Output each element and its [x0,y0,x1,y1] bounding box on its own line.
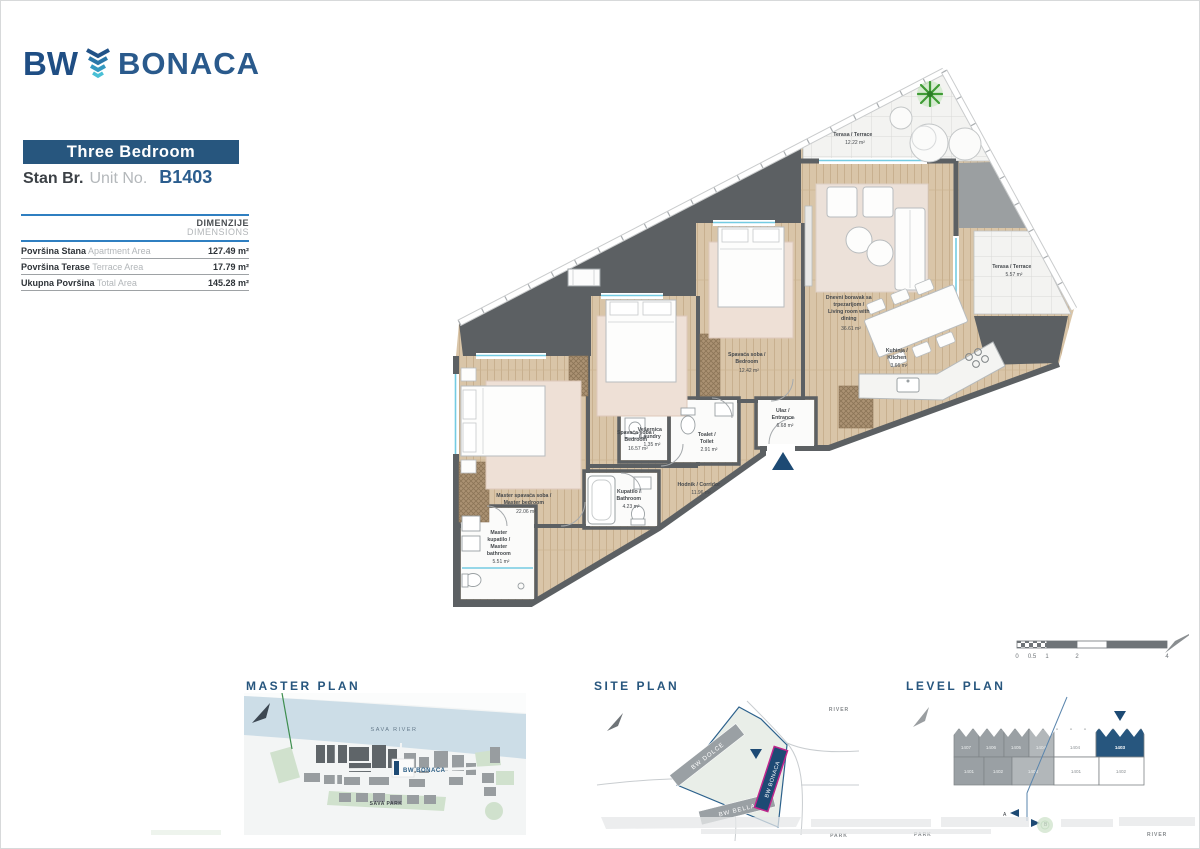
unit-label-en: Unit No. [89,170,147,188]
svg-text:1406: 1406 [986,745,997,750]
row-label-en: Apartment Area [88,246,151,256]
row-label-en: Terrace Area [92,262,143,272]
table-row: Površina Stana Apartment Area 127.49 m² [21,243,249,259]
master-plan-map: SAVA RIVER [244,693,526,835]
river-label: SAVA RIVER [371,727,418,733]
table-row: Ukupna Površina Total Area 145.28 m² [21,275,249,291]
park-label: SAVA PARK [370,801,403,807]
north-arrow-icon [1165,631,1189,653]
svg-text:1404: 1404 [1070,745,1081,750]
svg-text:1401: 1401 [964,769,975,774]
table-header: DIMENZIJE DIMENSIONS [21,219,249,240]
ac-unit [568,269,600,286]
table-row: Površina Terase Terrace Area 17.79 m² [21,259,249,275]
scale-tick: 0.5 [1028,654,1037,660]
scale-bar: 0 0.5 1 2 4 [1009,623,1189,665]
scale-tick: 1 [1045,654,1049,660]
entrance-marker-icon [772,452,794,470]
dimensions-table: DIMENZIJE DIMENSIONS Površina Stana Apar… [21,214,249,291]
svg-text:1402: 1402 [1116,769,1127,774]
brochure-page: BW BONACA Three Bedroom Stan Br. Unit No… [0,0,1200,849]
bedroom1-furniture [709,227,793,338]
site-plan-title: SITE PLAN [594,679,679,693]
row-label-en: Total Area [97,278,137,288]
row-label-sr: Površina Terase [21,262,90,272]
bedroom2-furniture [597,300,687,416]
row-value: 17.79 m² [213,262,249,272]
compass-icon [607,713,623,731]
svg-text:1407: 1407 [961,745,972,750]
svg-text:1402: 1402 [993,769,1004,774]
table-header-en: DIMENSIONS [21,228,249,237]
unit-number-line: Stan Br. Unit No. B1403 [23,167,239,188]
scale-tick: 2 [1075,654,1079,660]
row-label-sr: Površina Stana [21,246,86,256]
logo-name-text: BONACA [118,46,260,82]
compass-icon [913,707,929,727]
project-label: BW BONACA [403,768,446,774]
svg-text:1401: 1401 [1071,769,1082,774]
row-value: 145.28 m² [208,278,249,288]
level-white-building [1054,729,1144,785]
row-label-sr: Ukupna Površina [21,278,95,288]
unit-number: B1403 [159,167,212,188]
project-building-highlight [394,761,399,775]
unit-type-banner: Three Bedroom [23,140,239,164]
row-value: 127.49 m² [208,246,249,256]
level-marker-icon [1114,711,1126,721]
tree-icon [917,81,943,107]
master-plan-title: MASTER PLAN [246,679,360,693]
logo-bw-text: BW [23,45,78,83]
scale-tick: 0 [1015,654,1019,660]
cutoff-map-strip [1,817,1200,837]
table-mid-rule [21,240,249,242]
logo: BW BONACA [23,45,260,83]
svg-text:1405: 1405 [1011,745,1022,750]
site-river-label: RIVER [829,707,849,713]
scale-tick: 4 [1165,654,1169,660]
table-top-rule [21,214,249,216]
floorplan-drawing: Terasa / Terrace 12.22 m² Terasa / Terra… [431,56,1101,636]
neighbor-gray-area [959,162,1029,228]
unit-label-sr: Stan Br. [23,170,83,188]
svg-text:1403: 1403 [1115,745,1126,750]
level-plan-title: LEVEL PLAN [906,679,1005,693]
level-gray-building [954,729,1054,785]
logo-chevron-icon [85,47,111,81]
